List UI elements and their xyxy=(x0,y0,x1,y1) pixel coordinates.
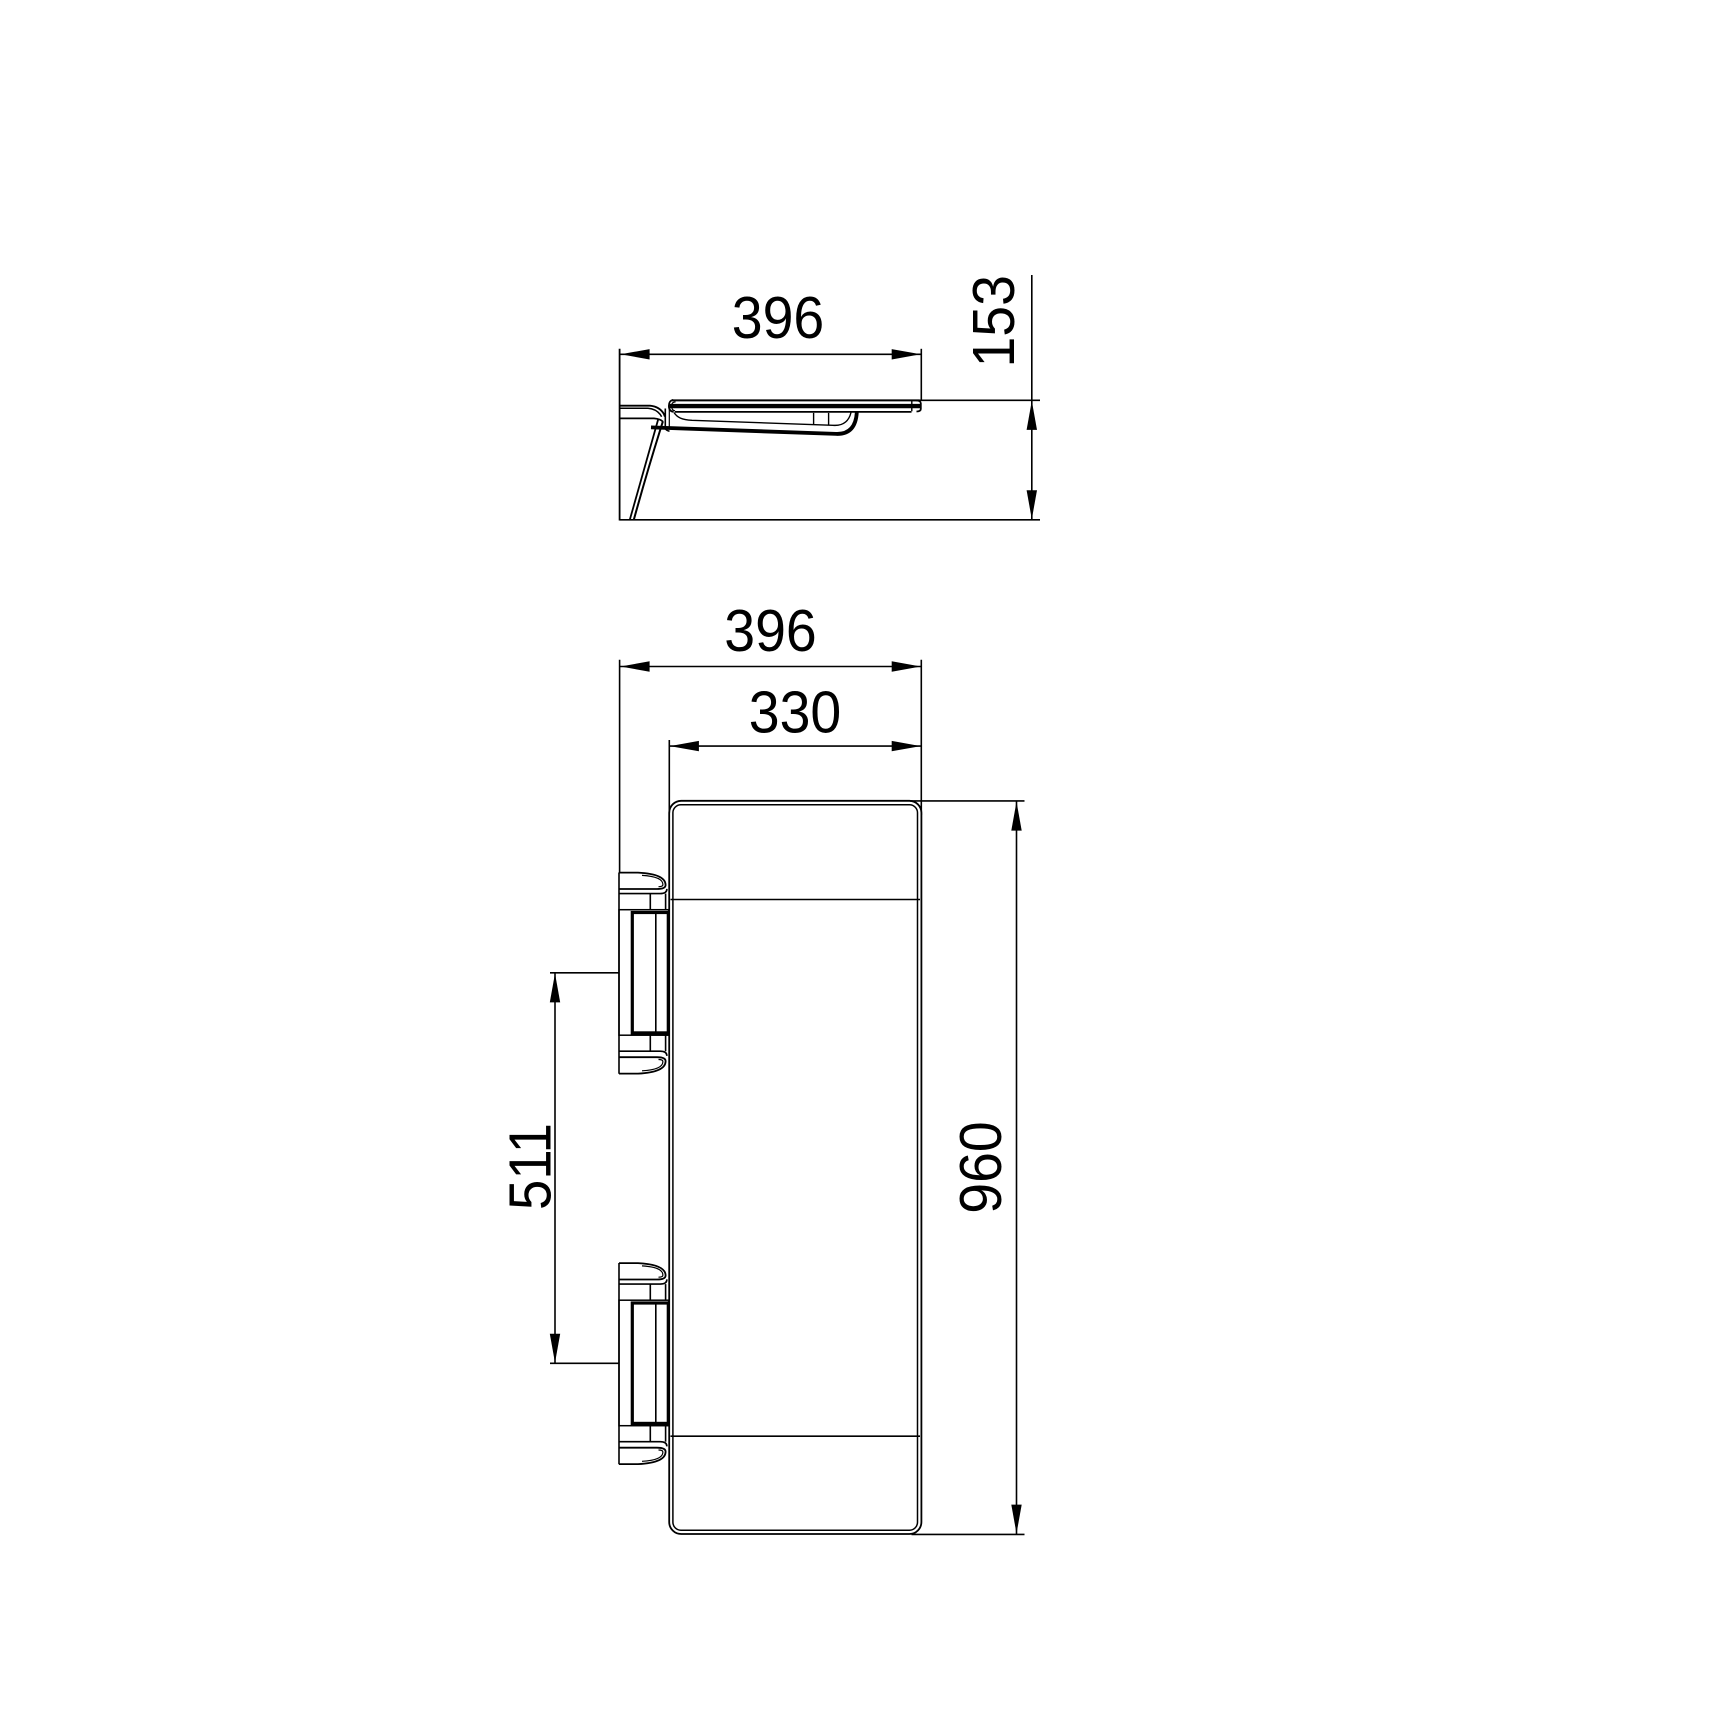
svg-text:330: 330 xyxy=(749,680,842,746)
svg-text:511: 511 xyxy=(498,1123,564,1210)
svg-text:396: 396 xyxy=(724,598,817,664)
svg-text:153: 153 xyxy=(961,275,1027,368)
svg-text:960: 960 xyxy=(948,1121,1014,1214)
svg-text:396: 396 xyxy=(732,285,825,351)
